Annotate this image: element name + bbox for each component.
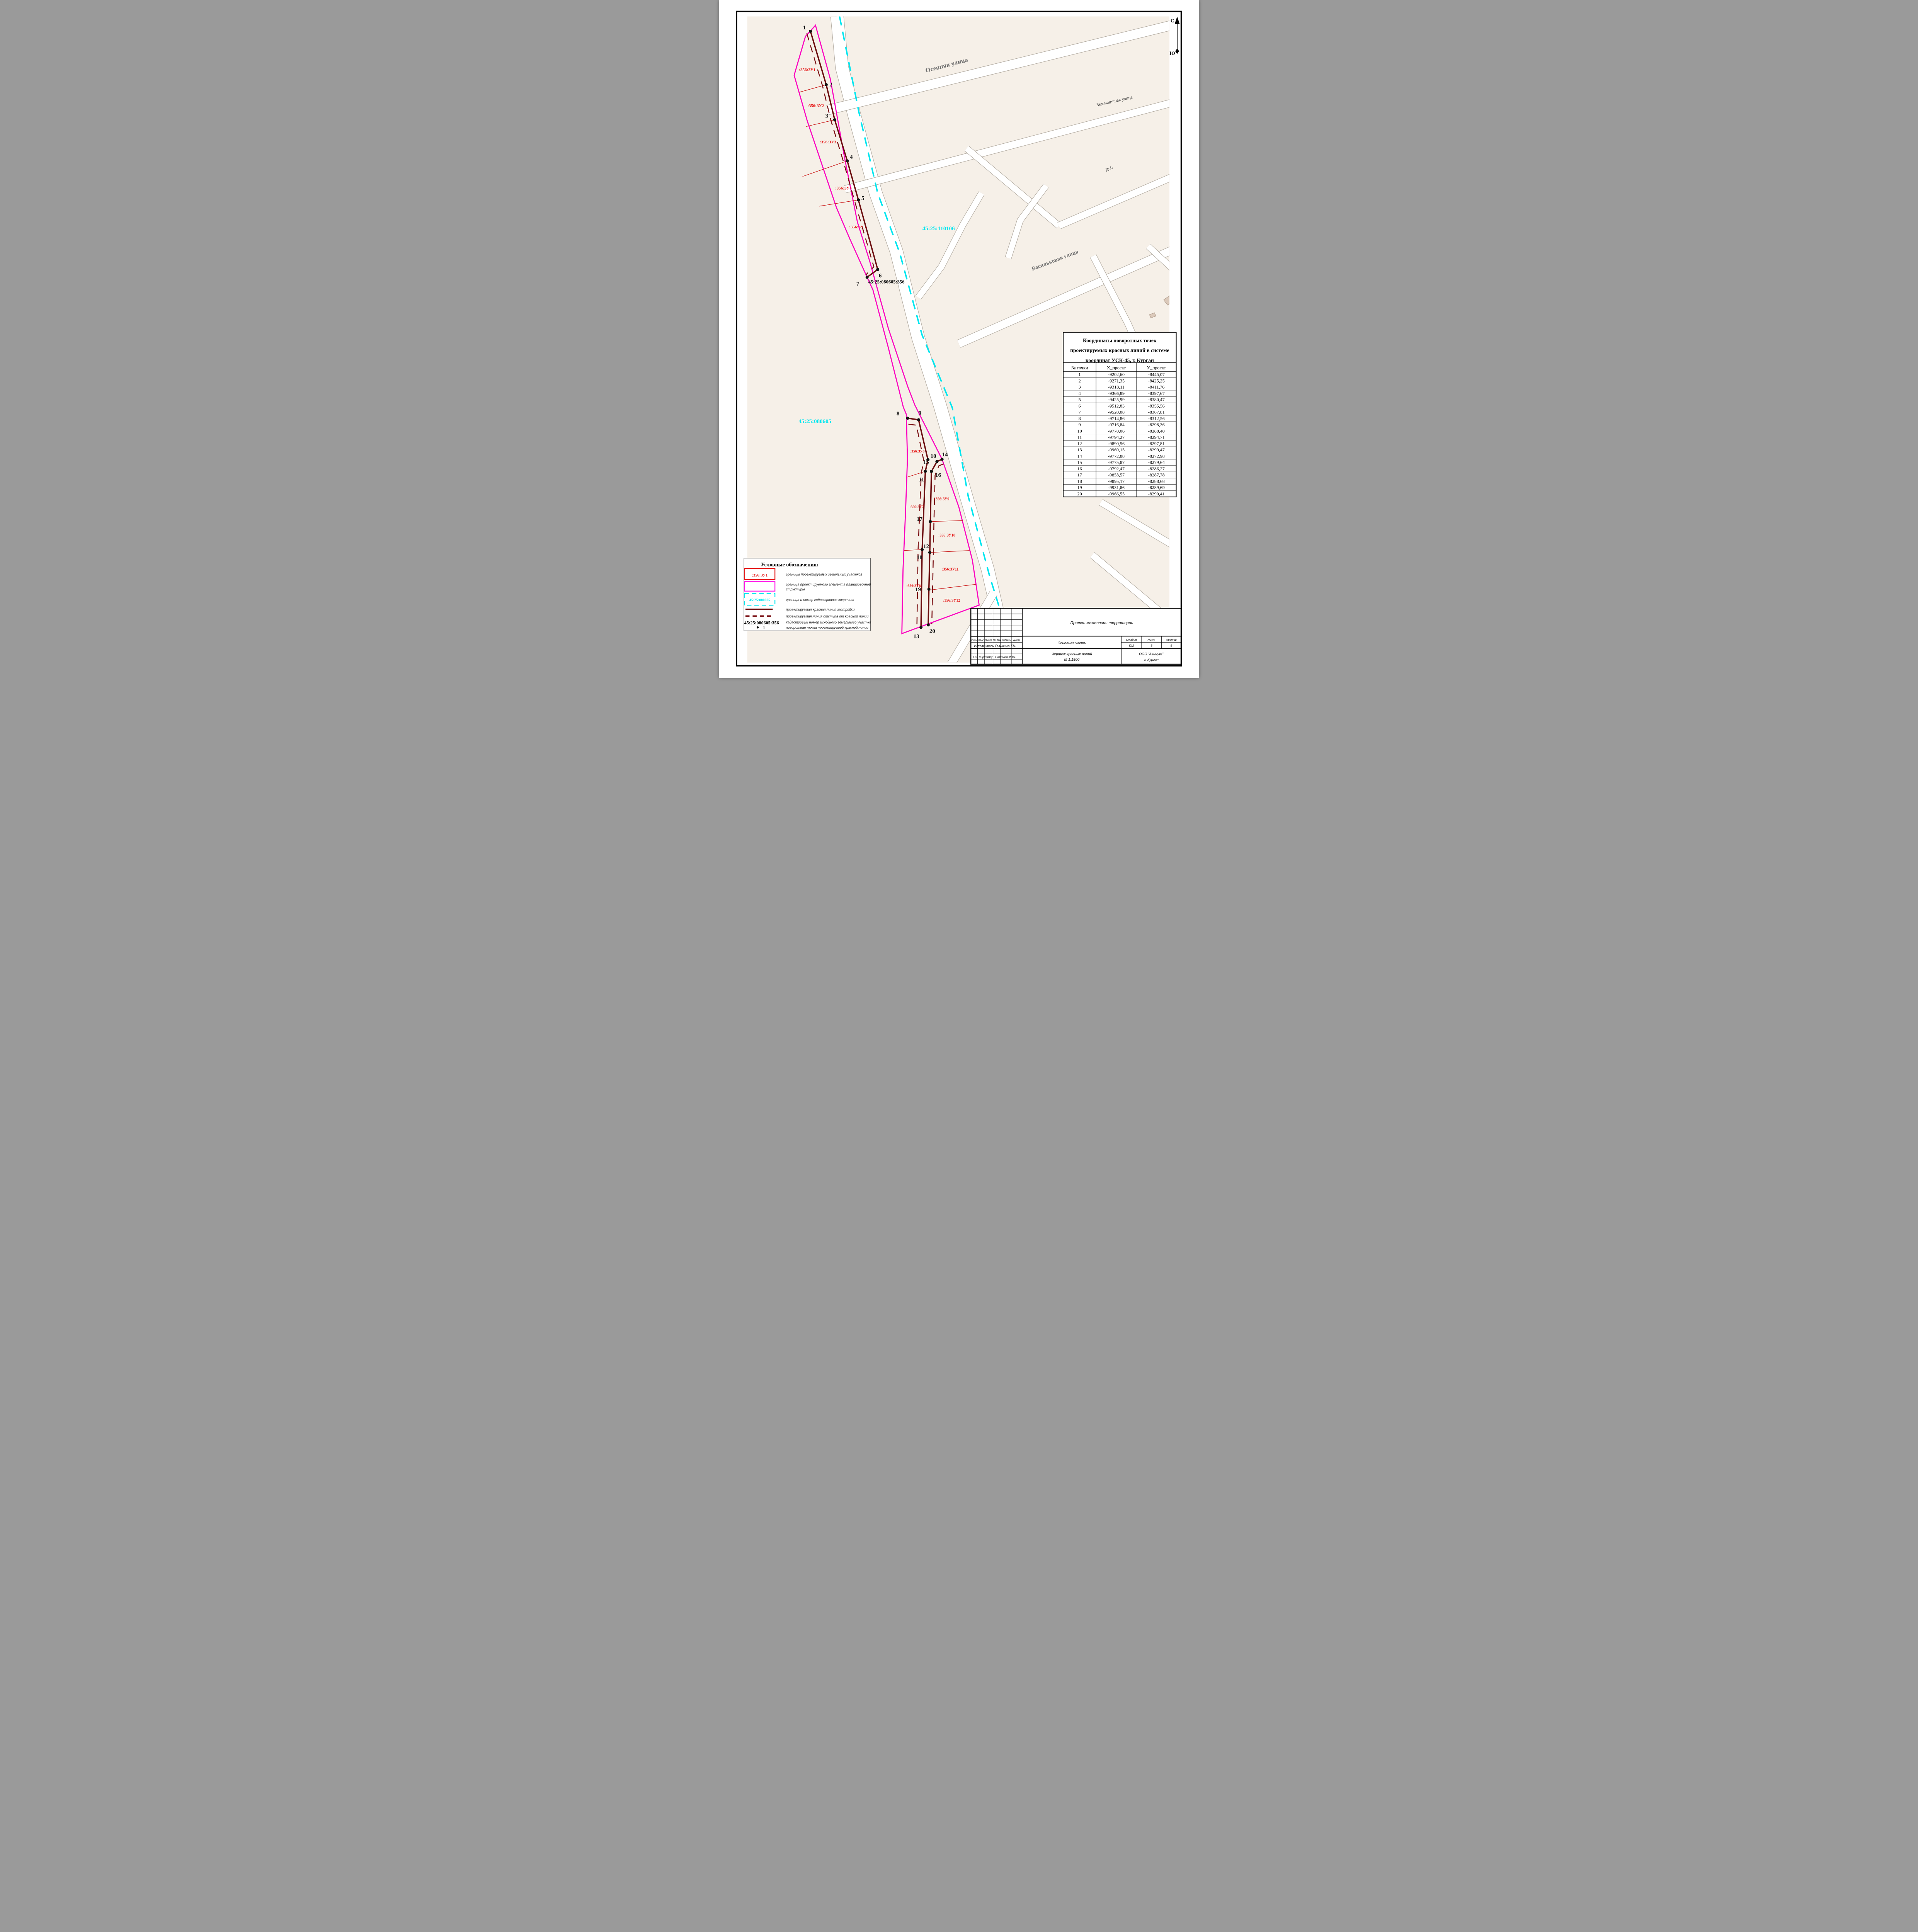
stage-value: ПМ	[1129, 644, 1134, 648]
sheets-header: Листов	[1166, 638, 1176, 641]
parcel-label: :356:ЗУ11	[942, 567, 958, 571]
rev-header-list: Лист.	[985, 639, 992, 641]
rev-header-ndok: № док	[993, 638, 1001, 641]
table-cell: 2	[1079, 378, 1081, 383]
legend-item7-label: поворотная точка проектируемой красной л…	[786, 626, 868, 629]
table-header-y: У_проект	[1147, 365, 1166, 370]
rev-header-koluch: Кол.уч.	[977, 639, 985, 641]
south-label: Ю	[1170, 51, 1175, 56]
table-cell: -9794,27	[1108, 435, 1125, 440]
table-cell: -8279,64	[1148, 460, 1165, 465]
table-cell: 20	[1077, 491, 1082, 497]
turning-point-number: 5	[861, 195, 865, 201]
parcel-label: :356:ЗУ1	[799, 68, 815, 72]
company-city: г. Курган	[1144, 658, 1159, 662]
turning-point-dot	[866, 276, 869, 279]
legend-point-symbol	[757, 626, 759, 628]
turning-point-dot	[917, 418, 920, 421]
quarter-label-080605: 45:25:080605	[798, 418, 831, 425]
table-cell: 14	[1077, 453, 1082, 459]
turning-point-dot	[919, 626, 922, 629]
table-cell: -8288,40	[1148, 428, 1165, 434]
table-cell: -8367,81	[1148, 410, 1165, 415]
table-headers: № точки Х_проект У_проект	[1071, 365, 1166, 370]
legend-item6-label: кадастровый номер исходного земельного у…	[786, 621, 871, 624]
title-block: Изм. Кол.уч. Лист. № док Подпись Дата Ис…	[971, 608, 1181, 664]
quarter-label-110106: 45:25:110106	[922, 226, 955, 232]
parcel-label: :356:ЗУ2	[807, 104, 824, 108]
turning-point-number: 2	[829, 82, 832, 88]
turning-point-dot	[930, 470, 933, 473]
table-cell: -9271,35	[1108, 378, 1125, 383]
table-cell: 6	[1079, 403, 1081, 408]
table-cell: -9853,57	[1108, 472, 1125, 478]
turning-point-number: 15	[923, 459, 929, 466]
rev-header-podpis: Подпись	[1001, 638, 1011, 641]
turning-point-number: 17	[917, 516, 922, 522]
rev-header-izm: Изм.	[972, 639, 977, 641]
table-cell: -9520,08	[1108, 410, 1125, 415]
table-cell: 4	[1079, 391, 1081, 396]
turning-point-dot	[927, 623, 930, 626]
table-cell: 3	[1079, 384, 1081, 390]
turning-point-number: 11	[919, 476, 924, 483]
table-cell: -9969,15	[1108, 447, 1125, 452]
table-cell: 19	[1077, 485, 1082, 490]
legend-item1-label: границы проектируемых земельных участков	[786, 572, 863, 576]
table-cell: -9890,56	[1108, 441, 1125, 446]
table-cell: -8294,71	[1148, 435, 1165, 440]
cadastral-drawing: 1234567891011121314151617181920 :356:ЗУ1…	[719, 0, 1199, 678]
table-cell: -9792,47	[1108, 466, 1125, 471]
source-parcel-label: 45:25:080605:356	[868, 279, 905, 285]
turning-point-number: 10	[931, 453, 936, 459]
turning-point-number: 1	[803, 25, 806, 31]
turning-point-dot	[833, 118, 836, 121]
table-title-line3: координат УСК-45, г. Курган	[1086, 357, 1154, 363]
table-cell: 11	[1077, 435, 1082, 440]
parcel-label: :356:ЗУ3	[820, 140, 836, 145]
legend-quarter-symbol-text: 45:25:080605	[749, 599, 770, 602]
table-cell: -9716,84	[1108, 422, 1125, 427]
table-cell: 9	[1079, 422, 1081, 427]
turning-point-number: 16	[935, 472, 941, 478]
north-label: С	[1171, 18, 1174, 24]
turning-point-dot	[924, 470, 927, 473]
turning-point-dot	[876, 268, 879, 271]
table-cell: -8286,27	[1148, 466, 1165, 471]
turning-point-dot	[825, 83, 828, 86]
project-title: Проект межевания территории	[1070, 621, 1133, 625]
table-cell: -8397,67	[1148, 391, 1165, 396]
director-name: Пахомов М.Ю.	[995, 655, 1016, 659]
legend-title: Условные обозначения:	[761, 562, 819, 568]
table-cell: 17	[1077, 472, 1082, 478]
company-name: ООО "Азимут"	[1139, 652, 1164, 656]
turning-point-dot	[928, 588, 931, 591]
turning-point-dot	[906, 417, 909, 420]
table-cell: -8288,68	[1148, 478, 1165, 484]
table-header-x: Х_проект	[1107, 365, 1126, 370]
turning-point-dot	[809, 30, 812, 33]
turning-point-number: 14	[942, 452, 948, 458]
table-cell: -9202,60	[1108, 372, 1125, 377]
legend-item2-label-line2: структуры	[786, 587, 805, 591]
table-cell: -8312,56	[1148, 416, 1165, 421]
table-cell: 18	[1077, 478, 1082, 484]
sheet-value: 3	[1150, 644, 1152, 648]
table-cell: -8380,47	[1148, 397, 1165, 402]
table-cell: -9931,86	[1108, 485, 1125, 490]
table-cell: 8	[1079, 416, 1081, 421]
turning-point-number: 8	[897, 411, 900, 417]
director-label: Ген.директор	[973, 655, 994, 659]
parcel-label: :356:ЗУ6	[910, 450, 924, 454]
legend: Условные обозначения: :356:ЗУ1 границы п…	[744, 558, 871, 631]
parcel-label: :356:ЗУ4	[835, 186, 852, 190]
legend-item4-label: проектируемая красная линия застройки	[786, 607, 855, 611]
turning-point-number: 13	[914, 634, 919, 640]
table-cell: -8297,81	[1148, 441, 1165, 446]
legend-point-number: 1	[763, 626, 765, 630]
table-cell: -8272,98	[1148, 453, 1165, 459]
drawing-title: Чертеж красных линий	[1052, 652, 1093, 656]
table-title-line1: Координаты поворотных точек	[1083, 337, 1157, 343]
stage-header: Стадия	[1126, 638, 1137, 641]
table-cell: 16	[1077, 466, 1082, 471]
turning-point-number: 4	[850, 154, 853, 160]
turning-point-number: 6	[879, 273, 882, 279]
table-cell: -8425,25	[1148, 378, 1165, 383]
table-cell: -8355,56	[1148, 403, 1165, 408]
turning-point-number: 9	[919, 410, 922, 416]
turning-point-number: 20	[929, 628, 935, 634]
table-cell: -9775,87	[1108, 460, 1125, 465]
legend-cadastral-number: 45:25:080605:356	[744, 620, 779, 625]
turning-point-dot	[929, 520, 932, 523]
legend-item5-label: проектируемая линия отступа от красной л…	[786, 614, 869, 618]
table-cell: -8287,78	[1148, 472, 1165, 478]
legend-parcel-symbol-text: :356:ЗУ1	[752, 573, 768, 578]
turning-point-dot	[941, 458, 944, 461]
coordinates-table: Координаты поворотных точек проектируемы…	[1063, 332, 1176, 497]
table-cell: -8290,41	[1148, 491, 1165, 497]
parcel-label: :356:ЗУ9	[934, 497, 949, 501]
parcel-label: :356:ЗУ5	[849, 225, 866, 230]
table-header-point: № точки	[1071, 365, 1088, 370]
table-title-line2: проектируемых красных линий в системе	[1070, 347, 1169, 353]
table-cell: -8299,47	[1148, 447, 1165, 452]
table-cell: -8445,07	[1148, 372, 1165, 377]
table-cell: -9318,11	[1108, 384, 1125, 390]
table-cell: -9512,83	[1108, 403, 1125, 408]
table-cell: -8298,36	[1148, 422, 1165, 427]
rev-header-data: Дата	[1013, 639, 1020, 641]
turning-point-dot	[846, 159, 849, 162]
turning-point-number: 3	[825, 113, 829, 119]
sheet-header: Лист	[1147, 638, 1155, 641]
parcel-label: :356:ЗУ7	[909, 505, 924, 509]
table-cell: 10	[1077, 428, 1082, 434]
parcel-label: :356:ЗУ10	[938, 534, 955, 538]
turning-point-number: 7	[856, 281, 859, 287]
table-cell: -9714,86	[1108, 416, 1125, 421]
table-cell: -8289,69	[1148, 485, 1165, 490]
parcel-label: :356:ЗУ12	[943, 599, 960, 603]
table-cell: 13	[1077, 447, 1082, 452]
legend-item2-label-line1: граница проектируемого элемента планиров…	[786, 582, 871, 586]
turning-point-dot	[928, 551, 931, 554]
legend-item3-label: граница и номер кадастрового квартала	[786, 598, 854, 602]
turning-point-number: 12	[923, 543, 929, 549]
drawing-scale: М 1:1500	[1064, 658, 1080, 662]
turning-point-dot	[857, 198, 860, 201]
drawing-sheet: 1234567891011121314151617181920 :356:ЗУ1…	[719, 0, 1199, 678]
sheets-value: 5	[1171, 644, 1173, 648]
turning-point-dot	[935, 460, 938, 463]
table-cell: -8411,76	[1148, 384, 1165, 390]
parcel-label: :356:ЗУ8	[907, 584, 921, 588]
table-cell: 7	[1079, 410, 1081, 415]
turning-point-number: 18	[917, 554, 922, 561]
executor-name: Гальченко Т.Н.	[995, 644, 1016, 648]
table-cell: -9966,55	[1108, 491, 1125, 497]
table-cell: 5	[1079, 397, 1081, 402]
table-cell: -9772,88	[1108, 453, 1125, 459]
section-title: Основная часть	[1058, 641, 1086, 645]
table-cell: 12	[1077, 441, 1082, 446]
table-cell: 1	[1079, 372, 1081, 377]
table-cell: -9425,99	[1108, 397, 1125, 402]
table-cell: -9770,06	[1108, 428, 1125, 434]
executor-label: Исполнитель	[974, 644, 994, 648]
table-cell: 15	[1077, 460, 1082, 465]
table-cell: -9366,89	[1108, 391, 1125, 396]
table-cell: -9895,17	[1108, 478, 1125, 484]
